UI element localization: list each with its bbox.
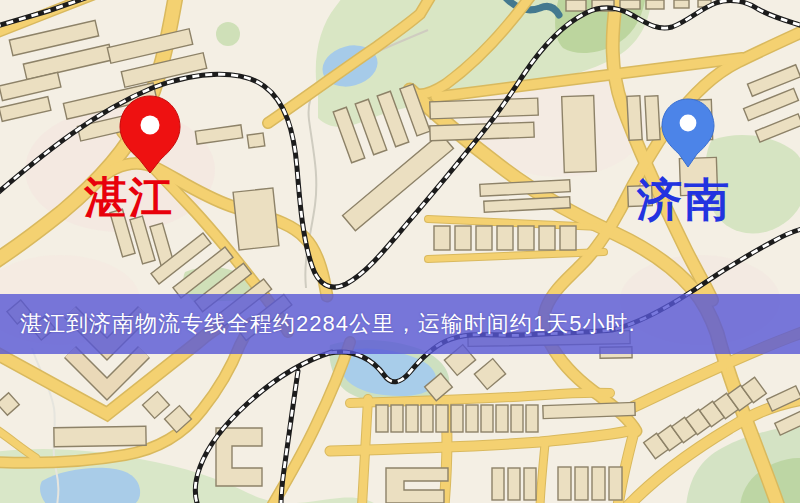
location-pin-icon[interactable] [662, 99, 714, 167]
origin-city-label: 湛江 [84, 176, 174, 219]
destination-pin[interactable] [0, 0, 800, 503]
destination-city-label: 济南 [637, 177, 731, 222]
route-info-text: 湛江到济南物流专线全程约2284公里，运输时间约1天5小时. [0, 309, 636, 339]
route-info-banner: 湛江到济南物流专线全程约2284公里，运输时间约1天5小时. [0, 294, 800, 354]
map-screenshot: 湛江 济南 湛江到济南物流专线全程约2284公里，运输时间约1天5小时. [0, 0, 800, 503]
